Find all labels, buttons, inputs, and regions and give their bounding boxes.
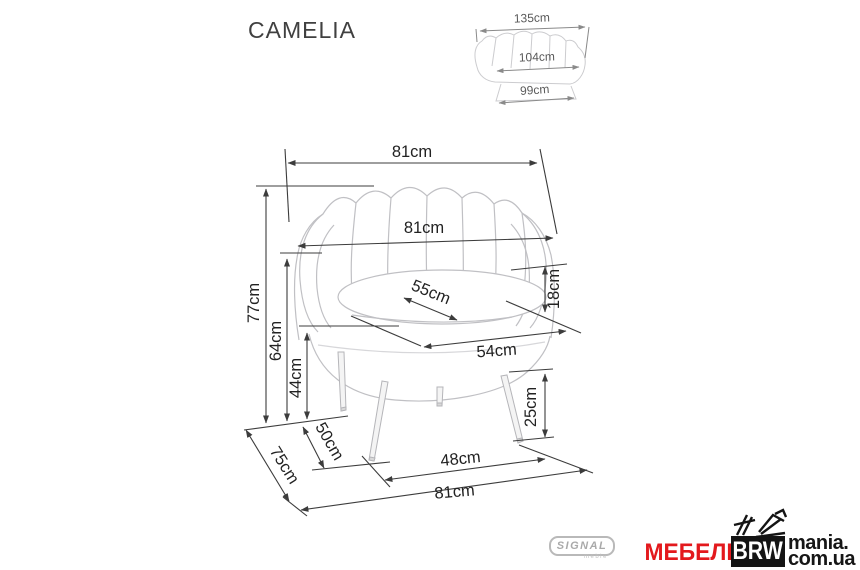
leg-foot-cap [341, 407, 346, 411]
inset-channel-line [565, 41, 566, 68]
dim-label-bottom-width: 81cm [434, 481, 476, 502]
watermark-brw-badge: BRW [731, 536, 785, 567]
dim-label-cushion-thickness: 18cm [545, 269, 563, 309]
dim-label-back-side-height: 64cm [267, 321, 285, 361]
extension-line [312, 462, 390, 470]
dimension-line [480, 27, 585, 31]
dimension-drawing: 81cm 81cm 77cm 64cm 44cm [0, 0, 860, 570]
leg-foot-cap [437, 403, 442, 406]
signal-logo: SIGNAL [549, 536, 615, 556]
front-left-leg [369, 381, 388, 461]
main-dimensions: 81cm 81cm 77cm 64cm 44cm [244, 143, 593, 516]
dimension-line [298, 238, 553, 246]
petal-seam [351, 203, 356, 292]
left-armrest [300, 214, 323, 332]
extension-line [476, 29, 477, 42]
dim-label-seat-width: 54cm [476, 341, 518, 362]
dim-overall-depth: 75cm [246, 430, 303, 501]
inset-channel-line [492, 38, 496, 66]
dim-back-width: 81cm [298, 219, 553, 246]
dim-label-arm-height: 44cm [287, 358, 305, 398]
extension-line [283, 497, 307, 516]
dim-front-leg-span: 48cm [362, 445, 593, 487]
dim-bottom-width: 81cm [283, 470, 587, 516]
dimension-line [497, 67, 579, 71]
inset-channel-line [511, 35, 514, 68]
dim-label-leg-height: 25cm [522, 387, 540, 427]
dim-label-front-leg-span: 48cm [439, 448, 481, 470]
extension-line [509, 369, 553, 372]
dim-label-overall-depth: 75cm [266, 443, 303, 487]
dim-label-base-depth: 50cm [311, 420, 347, 464]
petal-seam [522, 213, 526, 290]
leg-foot-cap [369, 457, 375, 461]
left-armrest-inner [317, 225, 334, 328]
dim-label-height: 77cm [245, 283, 263, 323]
inset-dim-seat-width: 104cm [519, 49, 555, 64]
watermark-comua: com.ua [788, 550, 855, 568]
watermark-brw-text: BRW [733, 537, 783, 566]
dim-label-back-width: 81cm [404, 219, 444, 237]
back-left-leg [338, 352, 346, 411]
dim-label-top-width: 81cm [392, 143, 432, 161]
front-right-leg [501, 375, 523, 443]
furniture-icon [731, 508, 787, 538]
product-dimension-sheet: CAMELIA [0, 0, 860, 570]
extension-line [585, 27, 589, 58]
inset-dim-base-width: 99cm [520, 82, 550, 98]
extension-line [519, 445, 593, 473]
signal-logo-subtext: meble [584, 554, 608, 560]
legs [338, 352, 523, 461]
inset-dim-top-width: 135cm [514, 10, 550, 25]
signal-logo-text: SIGNAL [557, 540, 608, 552]
extension-line [362, 456, 390, 487]
watermark-mebel: МЕБЕЛЬ [645, 539, 731, 567]
extension-line [506, 301, 581, 333]
extension-line [540, 149, 557, 234]
